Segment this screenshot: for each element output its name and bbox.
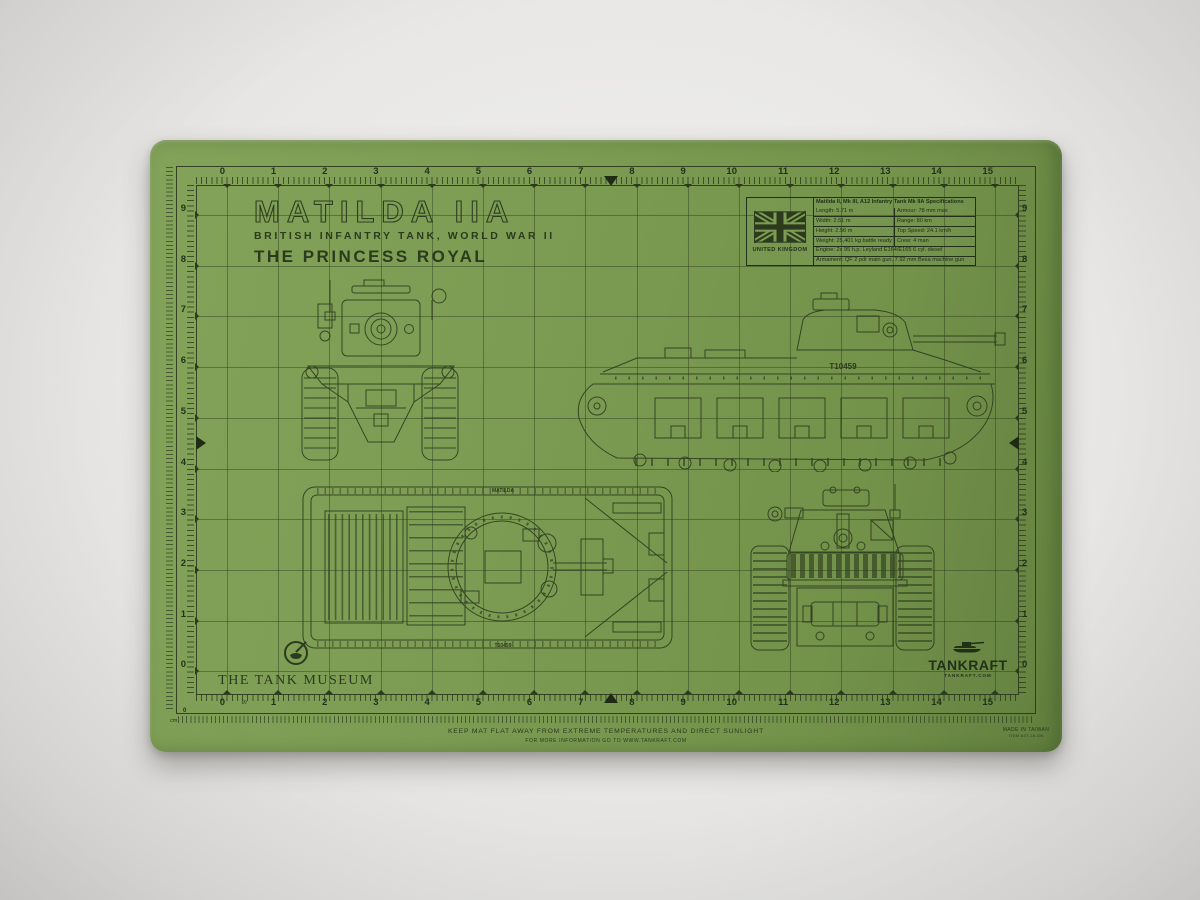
bottom-ruler-label: 13 [879,697,891,708]
bottom-ruler-label: 8 [623,697,635,708]
right-ruler-label: 3 [1022,507,1038,518]
tankraft-logo: TANKRAFT TANKRAFT.COM [928,640,1008,678]
tank-museum-label: THE TANK MUSEUM [208,673,384,689]
top-ruler-label: 6 [520,166,532,177]
spec-row: Length: 5.71 mArmour: 78 mm max [814,208,975,217]
tank-top-view-drawing: MATILDA T10459 [295,475,680,661]
spec-table: Matilda II, Mk III, A12 Infantry Tank Mk… [814,198,975,265]
left-ruler-label: 3 [170,507,186,518]
tankraft-tank-icon [948,640,988,653]
spec-table-rows: Length: 5.71 mArmour: 78 mm maxWidth: 2.… [814,208,975,266]
spec-row: Weight: 25,401 kg battle readyCrew: 4 ma… [814,236,975,246]
top-ruler-label: 11 [776,166,788,177]
made-in-block: MADE IN TAIWAN ITEM A3T-18-GN [986,727,1066,738]
bottom-ruler-label: 9 [674,697,686,708]
bottom-ruler-label: 3 [367,697,379,708]
spec-row-full: Armament: QF 2 pdr main gun, 7.92 mm Bes… [814,256,975,266]
top-ruler-label: 13 [879,166,891,177]
spec-block: UNITED KINGDOM Matilda II, Mk III, A12 I… [746,197,976,266]
top-ruler-label: 4 [418,166,430,177]
left-ruler-ticks [187,185,194,693]
top-ruler-label: 9 [674,166,686,177]
left-ruler-label: 7 [170,304,186,315]
spec-cell: Armour: 78 mm max [895,208,975,217]
top-center-arrow-icon [604,176,618,193]
tank-front-view-drawing [290,274,470,466]
right-ruler-label: 2 [1022,558,1038,569]
top-ruler-label: 3 [367,166,379,177]
tankraft-label: TANKRAFT [928,658,1008,672]
spec-cell: Engine: 2x 95 h.p. Leyland E164/E165 6 c… [814,247,944,256]
right-ruler-label: 9 [1022,203,1038,214]
tank-designation: THE PRINCESS ROYAL [254,247,555,267]
bottom-ruler-label: 7 [571,697,583,708]
left-ruler-label: 1 [170,609,186,620]
left-ruler-label: 5 [170,406,186,417]
bottom-ruler-label: 4 [418,697,430,708]
union-jack-icon [754,211,806,243]
spec-row: Width: 2.51 mRange: 80 km [814,216,975,226]
right-ruler-label: 7 [1022,304,1038,315]
bottom-center-arrow-icon [604,686,618,703]
top-ruler-label: 10 [725,166,737,177]
left-ruler-label: 4 [170,457,186,468]
spec-cell: Top Speed: 24.1 km/h [895,227,975,236]
tank-subtitle: BRITISH INFANTRY TANK, WORLD WAR II [254,230,555,242]
spec-cell: Weight: 25,401 kg battle ready [814,237,895,246]
top-ruler-label: 14 [930,166,942,177]
cm-scale-zero: 0 [183,708,186,714]
tank-museum-logo: THE TANK MUSEUM [208,638,384,689]
spec-cell: Armament: QF 2 pdr main gun, 7.92 mm Bes… [814,257,966,266]
right-ruler-label: 1 [1022,609,1038,620]
spec-row: Height: 2.56 mTop Speed: 24.1 km/h [814,226,975,236]
top-ruler-label: 12 [827,166,839,177]
inch-unit-label: in [242,700,247,706]
spec-row-full: Engine: 2x 95 h.p. Leyland E164/E165 6 c… [814,246,975,256]
right-ruler-label: 8 [1022,254,1038,265]
top-ruler-label: 2 [315,166,327,177]
left-center-arrow-icon [196,436,213,450]
left-ruler-label: 6 [170,355,186,366]
flag-country-label: UNITED KINGDOM [752,247,807,253]
tank-rear-view-drawing [745,482,940,656]
spec-cell: Range: 80 km [895,217,975,226]
top-view-serial-label: T10459 [495,643,512,649]
right-ruler-label: 6 [1022,355,1038,366]
tank-side-view-drawing: T10459 [545,286,1010,472]
spec-cell: Width: 2.51 m [814,217,895,226]
right-ruler-label: 5 [1022,406,1038,417]
tank-museum-roundel-icon [282,638,310,666]
side-view-serial-label: T10459 [829,362,857,371]
care-instructions: KEEP MAT FLAT AWAY FROM EXTREME TEMPERAT… [150,728,1062,735]
bottom-ruler-label: 11 [776,697,788,708]
spec-table-header: Matilda II, Mk III, A12 Infantry Tank Mk… [814,198,966,208]
top-ruler-label: 1 [264,166,276,177]
left-ruler-label: 9 [170,203,186,214]
right-center-arrow-icon [1002,436,1019,450]
tank-name-title: MATILDA IIA [254,196,555,227]
flag-cell: UNITED KINGDOM [747,198,814,265]
left-ruler-label: 0 [170,659,186,670]
spec-cell: Length: 5.71 m [814,208,895,217]
top-ruler-label: 8 [623,166,635,177]
spec-cell: Height: 2.56 m [814,227,895,236]
cm-scale-unit: cm [170,718,177,724]
photo-background: 0 cm in MATILDA IIA BRITISH INFANTRY TAN… [0,0,1200,900]
top-ruler-label: 0 [213,166,225,177]
bottom-ruler-label: 6 [520,697,532,708]
right-ruler-label: 4 [1022,457,1038,468]
left-ruler-label: 8 [170,254,186,265]
item-code-label: ITEM A3T-18-GN [986,733,1066,738]
top-ruler-label: 15 [981,166,993,177]
bottom-ruler-label: 0 [213,697,225,708]
spec-cell: Crew: 4 man [895,237,975,246]
bottom-ruler-label: 15 [981,697,993,708]
cutting-mat: 0 cm in MATILDA IIA BRITISH INFANTRY TAN… [150,140,1062,752]
top-view-name-label: MATILDA [492,488,515,494]
info-line: FOR MORE INFORMATION GO TO WWW.TANKRAFT.… [150,738,1062,744]
bottom-ruler-label: 10 [725,697,737,708]
top-ruler-label: 5 [469,166,481,177]
bottom-ruler-label: 1 [264,697,276,708]
tankraft-site-label: TANKRAFT.COM [928,673,1008,678]
bottom-ruler-label: 14 [930,697,942,708]
left-cm-ticks [166,167,173,712]
bottom-ruler-label: 5 [469,697,481,708]
left-ruler-label: 2 [170,558,186,569]
bottom-ruler-label: 12 [827,697,839,708]
top-ruler-label: 7 [571,166,583,177]
title-block: MATILDA IIA BRITISH INFANTRY TANK, WORLD… [254,196,555,267]
grid-line-vertical [227,185,228,693]
bottom-ruler-label: 2 [315,697,327,708]
right-ruler-label: 0 [1022,659,1038,670]
bottom-cm-ticks [178,716,1034,723]
